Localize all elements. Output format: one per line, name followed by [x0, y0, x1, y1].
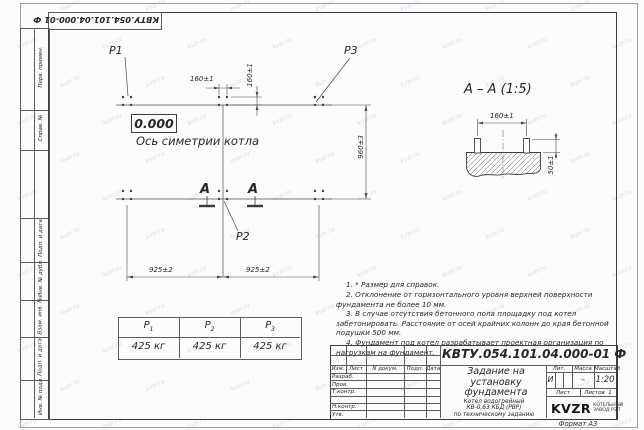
tb-lit-value: И — [546, 375, 555, 384]
margin-strip-divider — [34, 28, 35, 418]
note-1: 1. * Размер для справок. — [336, 280, 616, 290]
tb-col-dokum: N докум. — [366, 366, 404, 372]
tb-scale-label: Масштаб — [594, 366, 616, 372]
loads-value-p3: 425 кг — [240, 341, 300, 352]
org-name: КОТЕЛЬНЫЙЗАВОД РЭП — [593, 403, 623, 413]
drawing-sheet: kvzr.rukvzr.rukvzr.rukvzr.rukvzr.rukvzr.… — [0, 0, 644, 430]
tb-v-lit-2 — [563, 372, 564, 388]
tb-h-right-1 — [546, 372, 616, 373]
margin-label-sprav-n: Справ. № — [38, 109, 44, 147]
dim-label-160-side: 160±1 — [246, 61, 254, 89]
tb-sheets-label: Листов 1 — [580, 390, 616, 396]
load-point-p1-label: P1 — [109, 44, 123, 57]
dim-label-960: 960±3 — [357, 133, 365, 161]
tb-col-podp: Подп. — [404, 366, 426, 372]
loads-header-p1: Р1 — [118, 320, 179, 333]
tb-row-utv: Утв. — [332, 412, 344, 418]
load-point-p2-label: P2 — [236, 230, 250, 243]
tb-v-lit-1 — [555, 372, 556, 388]
tb-col-data: Дата — [426, 366, 440, 372]
elevation-mark: 0.000 — [131, 114, 177, 133]
margin-strip — [20, 28, 50, 420]
load-point-p3-label: P3 — [344, 44, 358, 57]
tb-h-8 — [330, 410, 440, 411]
tb-h-6 — [330, 396, 440, 397]
note-2: 2. Отклонение от горизонтального уровня … — [336, 290, 616, 309]
tb-row-prov: Пров. — [332, 382, 348, 388]
loads-value-p2: 425 кг — [179, 341, 240, 352]
tb-h-right-3 — [546, 396, 616, 397]
logo-cell: KVZR КОТЕЛЬНЫЙЗАВОД РЭП — [549, 399, 615, 417]
margin-label-perv-primen: Перв. примен. — [38, 29, 44, 105]
section-letter-left: А — [200, 182, 210, 197]
tb-col-list: Лист — [346, 366, 366, 372]
tb-designation: КВТУ.054.101.04.000-01 Ф — [442, 347, 614, 361]
tb-mass-value: – — [572, 375, 594, 384]
section-dim-label-160: 160±1 — [490, 112, 514, 120]
loads-value-p1: 425 кг — [118, 341, 179, 352]
top-designation-text: КВТУ.054.101.04.000-01 Ф — [49, 13, 159, 27]
section-letter-right: А — [248, 182, 258, 197]
margin-label-inv-podl: Инв. № подл. — [38, 379, 44, 415]
dim-label-925-left: 925±2 — [149, 266, 173, 274]
tb-row-razrab: Разраб. — [332, 374, 354, 380]
margin-label-vzam-inv: Взам. инв. № — [38, 300, 44, 335]
boiler-axis-label: Ось симетрии котла — [136, 134, 259, 148]
tb-document-title: Задание на установку фундамента — [448, 367, 544, 399]
note-3: 3. В случае отсутствия бетонного пола пл… — [336, 309, 616, 338]
dim-label-925-right: 925±2 — [246, 266, 270, 274]
tb-row-nkontr: Н.контр. — [332, 404, 357, 410]
margin-label-podp-data-2: Подп. и дата — [38, 337, 44, 378]
tb-sheet-label: Лист — [546, 390, 580, 396]
margin-divider-6 — [20, 337, 48, 338]
tb-object-name: Котел водогрейный КВ-0,63 КБД (РВР) по т… — [442, 399, 546, 418]
tb-row-tkontr: Т.контр. — [332, 389, 356, 395]
margin-label-podp-data-1: Подп. и дата — [38, 217, 44, 259]
margin-divider-5 — [20, 300, 48, 301]
brand-text: KVZR — [551, 401, 591, 416]
format-label: Формат А3 — [540, 420, 616, 428]
dim-label-160-top: 160±1 — [190, 75, 214, 83]
margin-label-inv-dubl: Инв. № дубл. — [38, 261, 44, 297]
loads-table-row-divider — [118, 337, 300, 338]
section-view-title: А – А (1:5) — [464, 82, 532, 97]
tb-lit-label: Лит. — [546, 366, 572, 372]
tb-scale-value: 1:20 — [594, 375, 616, 385]
loads-header-p2: Р2 — [179, 320, 240, 333]
tb-col-izm: Изм. — [330, 366, 346, 372]
section-dim-label-50: 50±1 — [547, 154, 555, 176]
margin-divider-2 — [20, 150, 48, 151]
tb-mass-label: Масса — [572, 366, 594, 372]
loads-header-p3: Р3 — [240, 320, 300, 333]
